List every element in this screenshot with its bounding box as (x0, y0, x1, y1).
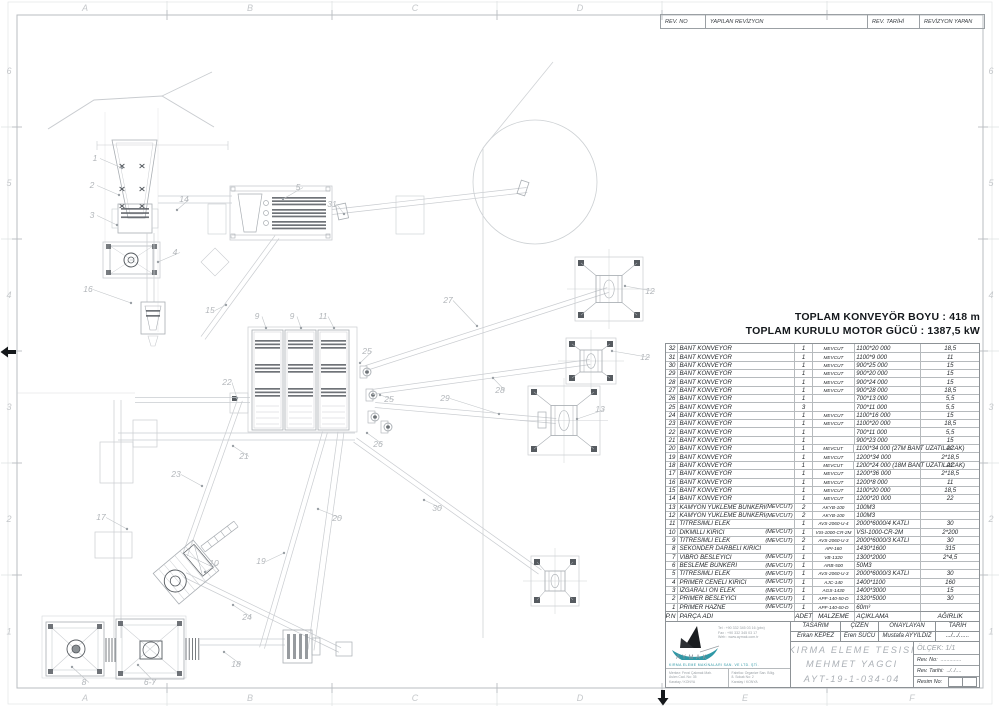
grid-ref-label: 2 (5, 514, 11, 524)
company-address: Merkez: Fevzi Çakmak Mah. Aslım Cad. No:… (666, 668, 790, 687)
title-block: Tel : +90 332 345 03 16 (pbx) Fax : +90 … (665, 621, 980, 688)
table-row: 13KAMYON YUKLEME BUNKERI(MEVCUT)2AKYB-10… (666, 503, 979, 511)
grid-ref-label: 3 (6, 402, 11, 412)
table-row: 8SEKONDER DARBELI KIRICI1API-1601430*160… (666, 544, 979, 552)
callout-leader (453, 301, 477, 327)
callout-label: 12 (640, 352, 650, 362)
callout-label: 29 (439, 393, 450, 403)
table-row: 10DIKMILLI KIRICI(MEVCUT)1VSI-1000-CR-2M… (666, 528, 979, 536)
total-conveyor-length: TOPLAM KONVEYÖR BOYU : 418 m (560, 311, 980, 325)
scale-box: ÖLÇEK: 1/1 Rev. No: .............. Rev. … (914, 642, 979, 688)
table-row: 3IZGARALI ON ELEK(MEVCUT)1AGS-14301400*3… (666, 586, 979, 594)
callout-label: 9 (255, 311, 260, 321)
grid-ref-label: A (81, 3, 88, 13)
table-row: 29BANT KONVEYOR1MEVCUT900*20 00015 (666, 369, 979, 377)
callout-leader (106, 518, 127, 530)
cizen-label: ÇİZEN (841, 622, 879, 631)
client-name: MEHMET YAGCI (806, 657, 898, 672)
logo-cell: Tel : +90 332 345 03 16 (pbx) Fax : +90 … (666, 622, 791, 687)
table-row: 14BANT KONVEYOR1MEVCUT1200*20 00022 (666, 494, 979, 502)
callout-leader (97, 216, 117, 226)
callout-leader (297, 317, 301, 329)
callout-leader (97, 186, 119, 196)
callout-leader (266, 553, 284, 562)
callout-label: 1 (93, 153, 98, 163)
table-row: 18BANT KONVEYOR1MEVCUT1200*24 000 (18M B… (666, 461, 979, 469)
company-contact: Tel : +90 332 345 03 16 (pbx) Fax : +90 … (718, 626, 788, 640)
callout-label: 28 (494, 385, 505, 395)
callout-leader (181, 475, 202, 487)
tarih-value: .../.../...... (936, 632, 979, 641)
callout-label: 23 (170, 469, 181, 479)
callout-label: 2 (89, 180, 95, 190)
drawing-sheet: 1234531141516991125252627282930212223172… (0, 0, 1000, 707)
grid-ref-label: 5 (6, 178, 12, 188)
table-row: 16BANT KONVEYOR1MEVCUT1200*8 00011 (666, 478, 979, 486)
grid-ref-label: F (909, 693, 915, 703)
drawing-number: AYT-19-1-034-04 (804, 672, 900, 687)
rev-no-row: Rev. No: .............. (914, 655, 979, 666)
table-row: 2PRIMER BESLEYICI(MEVCUT)1APF-140-50-D13… (666, 594, 979, 602)
rev-tarihi-header: REV. TARİHİ (868, 15, 920, 28)
parts-table-body: 32BANT KONVEYOR1MEVCUT1100*20 00018,531B… (666, 344, 979, 611)
callout-leader (93, 290, 131, 304)
callout-label: 17 (96, 512, 106, 522)
sheet-no-row: Resim No: (914, 677, 979, 688)
table-row: 12KAMYON YUKLEME BUNKERI(MEVCUT)2AKYB-10… (666, 511, 979, 519)
signature-labels-row: TASARIM ÇİZEN ONAYLAYAN TARİH (791, 622, 979, 632)
address-right: Fabrika: Organize San. Bölg. 8. Sokak No… (729, 669, 791, 687)
callout-label: 6-7 (144, 677, 157, 687)
title-area-row: KIRMA ELEME TESISI MEHMET YAGCI AYT-19-1… (791, 642, 979, 688)
grid-ref-label: A (81, 693, 88, 703)
table-row: 23BANT KONVEYOR1MEVCUT1100*20 00018,5 (666, 419, 979, 427)
yapilan-revizyon-header: YAPILAN REVİZYON (706, 15, 868, 28)
callout-label: 3 (90, 210, 95, 220)
cizen-value: Eren SUCU (841, 632, 879, 641)
onaylayan-label: ONAYLAYAN (879, 622, 936, 631)
table-row: 31BANT KONVEYOR1MEVCUT1100*9 00011 (666, 352, 979, 360)
table-row: 22BANT KONVEYOR1700*11 0005,5 (666, 427, 979, 435)
grid-ref-label: D (577, 693, 584, 703)
grid-ref-label: C (412, 693, 419, 703)
callout-label: 24 (241, 612, 252, 622)
callout-leader (100, 159, 122, 169)
table-row: 1PRIMER HAZNE(MEVCUT)1APF-140-60-D60m³ (666, 603, 979, 611)
table-row: 19BANT KONVEYOR1MEVCUT1200*34 0002*18,5 (666, 452, 979, 460)
grid-ref-label: 1 (988, 627, 993, 637)
grid-ref-label: 4 (988, 290, 993, 300)
bottom-center-mark (658, 690, 669, 706)
table-row: 20BANT KONVEYOR1MEVCUT1100*34 000 (27M B… (666, 444, 979, 452)
scale-value: ÖLÇEK: 1/1 (914, 642, 979, 655)
tarih-label: TARİH (936, 622, 979, 631)
table-row: 21BANT KONVEYOR1900*23 00015 (666, 436, 979, 444)
grid-ref-label: E (742, 693, 749, 703)
totals-block: TOPLAM KONVEYÖR BOYU : 418 m TOPLAM KURU… (560, 311, 980, 338)
project-title: KIRMA ELEME TESISI (791, 643, 914, 658)
callout-leader (328, 317, 334, 329)
grid-ref-label: 2 (987, 514, 993, 524)
title-block-right: TASARIM ÇİZEN ONAYLAYAN TARİH Erkan KEPE… (791, 622, 979, 687)
callout-leader (450, 399, 499, 415)
plant-linework (17, 62, 651, 679)
onaylayan-value: Mustafa AYYILDIZ (879, 632, 936, 641)
callout-label: 16 (83, 284, 93, 294)
callout-label: 19 (256, 556, 266, 566)
callout-label: 31 (327, 199, 337, 209)
callout-leader (337, 205, 344, 215)
callout-label: 13 (595, 404, 605, 414)
table-row: 24BANT KONVEYOR1MEVCUT1100*16 00015 (666, 411, 979, 419)
callout-label: 14 (179, 194, 189, 204)
table-row: 15BANT KONVEYOR1MEVCUT1100*20 00018,5 (666, 486, 979, 494)
grid-ref-label: 4 (6, 290, 11, 300)
callout-label: 10 (209, 558, 219, 568)
drawing-title: KIRMA ELEME TESISI MEHMET YAGCI AYT-19-1… (791, 642, 914, 688)
table-row: 4PRIMER CENELI KIRICI(MEVCUT)1AJC-140140… (666, 578, 979, 586)
company-tagline: KIRMA ELEME MAKİNALARI SAN. VE LTD. ŞTİ. (669, 663, 759, 667)
callout-label: 4 (173, 247, 178, 257)
table-row: 26BANT KONVEYOR1700*13 0005,5 (666, 394, 979, 402)
grid-ref-label: 6 (6, 66, 11, 76)
callout-leader (232, 383, 237, 399)
callout-label: 5 (296, 182, 301, 192)
callout-label: 20 (331, 513, 342, 523)
table-row: 28BANT KONVEYOR1MEVCUT900*24 00015 (666, 377, 979, 385)
grid-ref-label: 3 (988, 402, 993, 412)
table-row: 9TITRESIMLI ELEK(MEVCUT)2AVS-2060-U-3200… (666, 536, 979, 544)
rev-no-header: REV. NO (661, 15, 706, 28)
company-name: AYMAK (676, 655, 709, 661)
callout-leader (72, 667, 89, 683)
callout-label: 8 (82, 677, 87, 687)
callout-label: 21 (238, 451, 249, 461)
table-row: 30BANT KONVEYOR1MEVCUT900*25 00015 (666, 361, 979, 369)
grid-ref-label: B (247, 3, 253, 13)
parts-table: 32BANT KONVEYOR1MEVCUT1100*20 00018,531B… (665, 343, 980, 623)
rev-date-row: Rev. Tarihi: ../../.... (914, 666, 979, 677)
grid-ref-label: 1 (6, 627, 11, 637)
sheet-no-boxes (948, 677, 977, 687)
callout-label: 9 (290, 311, 295, 321)
table-row: 7VIBRO BESLEYICI(MEVCUT)1VB-13201300*200… (666, 553, 979, 561)
callout-label: 25 (383, 394, 394, 404)
revizyon-yapan-header: REVİZYON YAPAN (920, 15, 984, 28)
grid-ref-label: 6 (988, 66, 993, 76)
callout-label: 12 (645, 286, 655, 296)
callout-label: 18 (231, 659, 241, 669)
grid-ref-label: D (577, 3, 584, 13)
table-row: 27BANT KONVEYOR1MEVCUT900*28 00018,5 (666, 386, 979, 394)
address-left: Merkez: Fevzi Çakmak Mah. Aslım Cad. No:… (666, 669, 729, 687)
total-installed-power: TOPLAM KURULU MOTOR GÜCÜ : 1387,5 kW (560, 325, 980, 339)
table-row: 17BANT KONVEYOR1MEVCUT1200*36 0002*18,5 (666, 469, 979, 477)
tasarim-value: Erkan KEPEZ (791, 632, 841, 641)
callout-label: 27 (442, 295, 453, 305)
revision-table: REV. NO YAPILAN REVİZYON REV. TARİHİ REV… (660, 14, 985, 29)
contact-line: Web : www.aymak.com.tr (718, 635, 788, 640)
callout-label: 15 (205, 305, 215, 315)
signature-values-row: Erkan KEPEZ Eren SUCU Mustafa AYYILDIZ .… (791, 632, 979, 642)
callout-label: 26 (372, 439, 383, 449)
grid-ref-label: B (247, 693, 253, 703)
grid-ref-label: C (412, 3, 419, 13)
table-row: 25BANT KONVEYOR3700*11 0005,5 (666, 402, 979, 410)
callout-label: 22 (221, 377, 232, 387)
table-row: 32BANT KONVEYOR1MEVCUT1100*20 00018,5 (666, 344, 979, 352)
callout-leader (262, 317, 266, 329)
table-row: 11TITRESIMLI ELEK1AVS-2060-U-42000*6000/… (666, 519, 979, 527)
table-row: 5TITRESIMLI ELEK(MEVCUT)1AVS-2060-U-3200… (666, 569, 979, 577)
callout-layer: 1234531141516991125252627282930212223172… (71, 153, 655, 687)
grid-ref-label: 5 (988, 178, 994, 188)
callout-label: 30 (432, 503, 442, 513)
callout-label: 25 (361, 346, 372, 356)
callout-label: 11 (319, 311, 328, 321)
table-row: 6BESLEME BUNKERI(MEVCUT)1ARB-50050M3 (666, 561, 979, 569)
tasarim-label: TASARIM (791, 622, 841, 631)
